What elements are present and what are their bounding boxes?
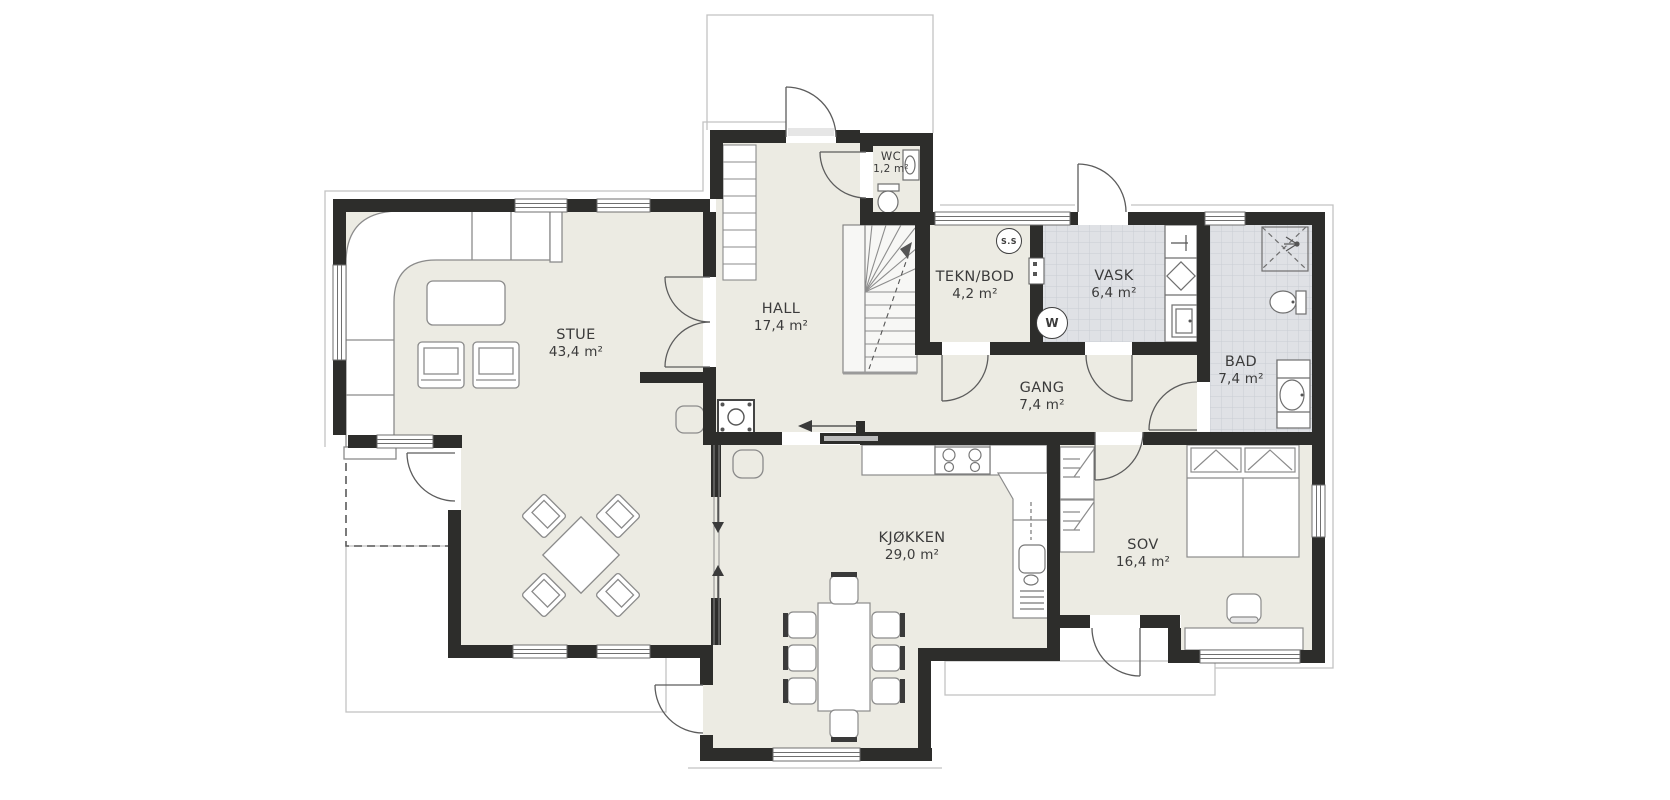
room-area: 7,4 m²: [1218, 371, 1264, 388]
room-area: 17,4 m²: [754, 318, 808, 335]
terrace-dashed-outline: [346, 450, 448, 546]
room-area: 29,0 m²: [878, 547, 945, 564]
room-area: 1,2 m²: [873, 163, 909, 176]
room-name: STUE: [549, 327, 603, 344]
room-name: HALL: [754, 301, 808, 318]
desk: [1185, 628, 1303, 650]
room-area: 16,4 m²: [1116, 554, 1170, 571]
window: [597, 645, 650, 658]
dining-chair: [872, 645, 905, 671]
dining-chair: [872, 678, 905, 704]
dining-chair: [783, 645, 816, 671]
window: [515, 199, 567, 212]
room-label-sov: SOV 16,4 m²: [1116, 537, 1170, 571]
window: [333, 265, 346, 360]
armchair: [473, 342, 519, 388]
wardrobe: [1060, 500, 1094, 552]
wardrobe: [1060, 447, 1094, 499]
dining-chair: [783, 678, 816, 704]
room-name: VASK: [1091, 268, 1137, 285]
window: [1205, 212, 1245, 225]
room-label-bad: BAD 7,4 m²: [1218, 354, 1264, 388]
dining-chair: [872, 612, 905, 638]
window: [1200, 650, 1300, 663]
room-name: SOV: [1116, 537, 1170, 554]
armchair: [418, 342, 464, 388]
wall-hatch: [1029, 258, 1044, 284]
window: [935, 212, 1070, 225]
room-label-gang: GANG 7,4 m²: [1019, 380, 1065, 414]
sov-porch-outline: [945, 661, 1215, 695]
bad-toilet-icon: [1270, 291, 1306, 314]
room-area: 43,4 m²: [549, 344, 603, 361]
entry-threshold: [788, 128, 834, 136]
cabinet-icon: [1172, 305, 1197, 337]
room-name: GANG: [1019, 380, 1065, 397]
room-label-wc: WC 1,2 m²: [873, 150, 909, 176]
entry-porch-outline: [707, 15, 933, 133]
desk-chair: [1227, 594, 1261, 623]
floor-plan-drawing: [0, 0, 1670, 800]
cooktop-icon: [935, 447, 990, 474]
sov-exterior-door: [1092, 628, 1140, 676]
bad-vanity-icon: [1277, 360, 1310, 428]
vask-counter: [1165, 225, 1197, 342]
window: [1312, 485, 1325, 537]
room-label-hall: HALL 17,4 m²: [754, 301, 808, 335]
vask-exterior-door: [1078, 164, 1126, 212]
room-label-tekn-bod: TEKN/BOD 4,2 m²: [936, 269, 1015, 303]
room-area: 4,2 m²: [936, 286, 1015, 303]
hall-wardrobe: [723, 145, 756, 280]
room-label-kjokken: KJØKKEN 29,0 m²: [878, 530, 945, 564]
wc-toilet-icon: [878, 184, 899, 213]
terrace-door: [407, 453, 455, 501]
chimney-icon: [718, 400, 754, 434]
room-label-stue: STUE 43,4 m²: [549, 327, 603, 361]
window: [377, 435, 433, 448]
floor-plan: STUE 43,4 m² HALL 17,4 m² WC 1,2 m² TEKN…: [0, 0, 1670, 800]
window: [597, 199, 650, 212]
window: [773, 748, 860, 761]
kitchen-exterior-door: [655, 685, 703, 733]
dining-chair: [830, 572, 858, 604]
room-name: WC: [873, 150, 909, 163]
double-bed: [1187, 445, 1299, 557]
window: [513, 645, 567, 658]
room-label-vask: VASK 6,4 m²: [1091, 268, 1137, 302]
shower-socket-symbol: S.S: [996, 228, 1022, 254]
staircase: [843, 225, 917, 373]
room-name: KJØKKEN: [878, 530, 945, 547]
coffee-table: [427, 281, 505, 325]
washing-machine-symbol: W: [1036, 307, 1068, 339]
room-name: BAD: [1218, 354, 1264, 371]
dining-chair: [783, 612, 816, 638]
room-name: TEKN/BOD: [936, 269, 1015, 286]
room-area: 7,4 m²: [1019, 397, 1065, 414]
room-area: 6,4 m²: [1091, 285, 1137, 302]
dining-chair: [830, 710, 858, 742]
